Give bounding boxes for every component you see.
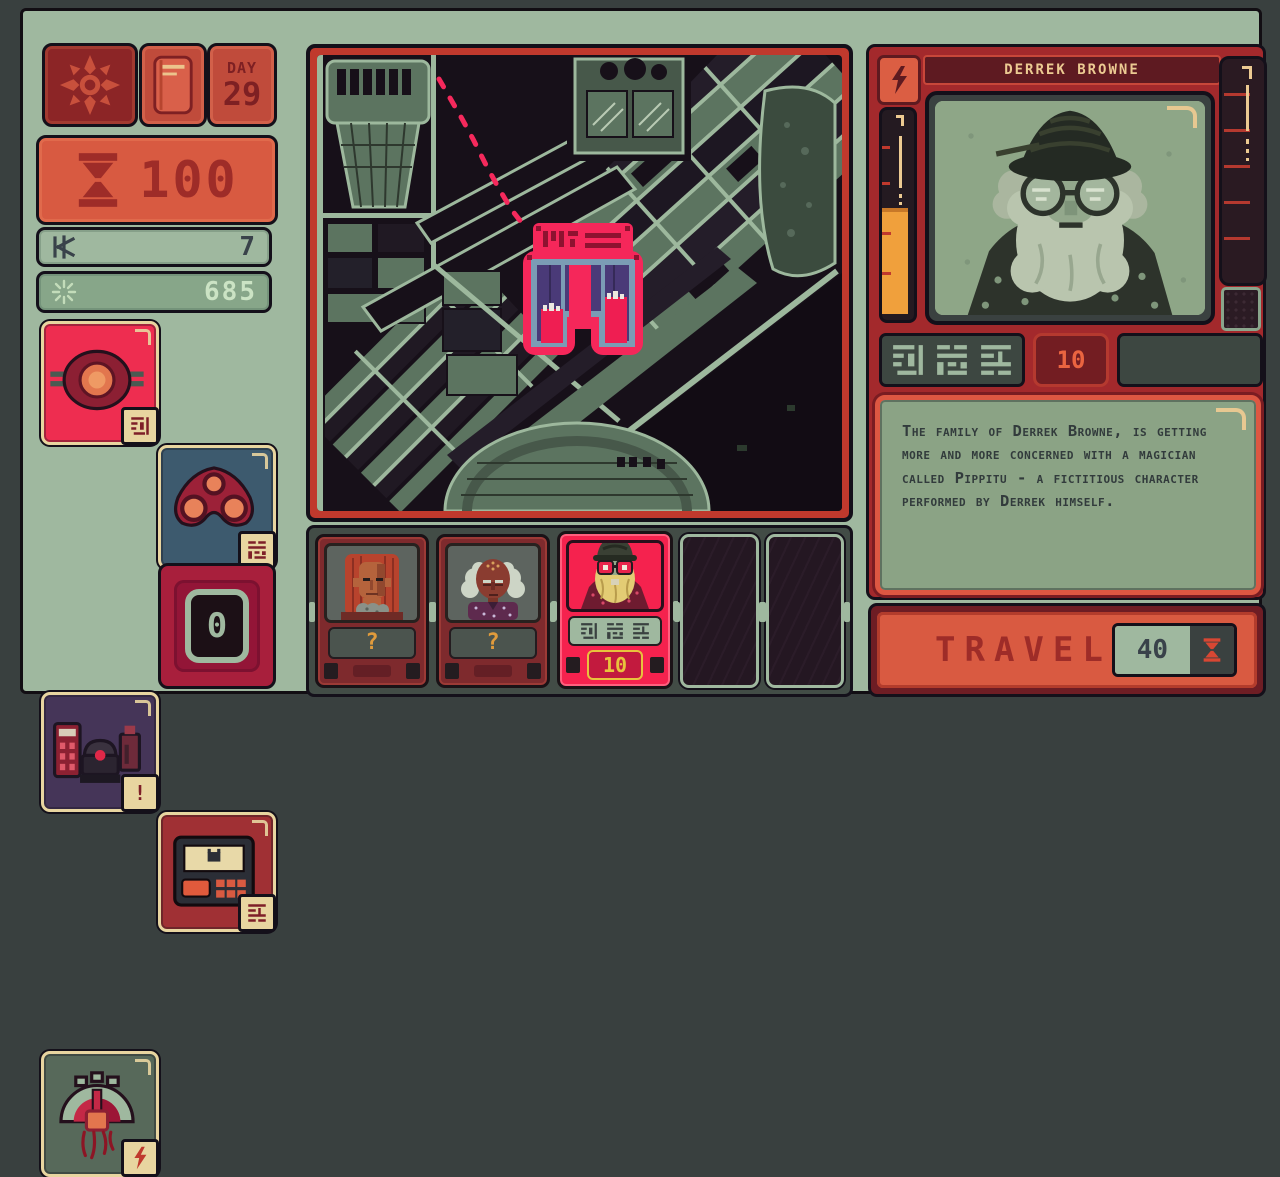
patient-name-bar: DERREK BROWNE xyxy=(923,55,1221,85)
energy-button[interactable] xyxy=(877,55,921,105)
credits-meter: 7 xyxy=(36,227,272,267)
spark-icon xyxy=(51,279,77,305)
hourglass-icon xyxy=(75,152,121,208)
item-scanner-device[interactable] xyxy=(41,321,159,445)
alert-exclamation: ! xyxy=(134,781,146,805)
map-big-building xyxy=(567,55,691,161)
hourglass-icon xyxy=(1202,637,1222,663)
compass-button[interactable] xyxy=(42,43,138,127)
patient-portrait-large xyxy=(935,101,1205,315)
counter-frame: 0 xyxy=(174,580,260,672)
map-park xyxy=(760,87,835,276)
queue-card-footer: 10 xyxy=(560,646,670,686)
bolt-plate xyxy=(566,657,580,673)
credits-value: 7 xyxy=(239,232,257,262)
patient-panel: DERREK BROWNE xyxy=(866,44,1266,600)
corner-accent xyxy=(252,820,268,836)
corner-accent xyxy=(252,453,268,469)
console-background: DAY 29 100 7 xyxy=(20,8,1262,694)
time-units-value: 100 xyxy=(139,151,238,209)
script-glyph xyxy=(934,343,970,377)
queue-card-footer xyxy=(318,659,426,685)
script-glyph xyxy=(978,343,1014,377)
travel-cost-value: 40 xyxy=(1115,626,1190,674)
patient-description: The family of Derrek Browne, is getting … xyxy=(902,420,1234,513)
patient-queue: ? xyxy=(306,525,853,697)
queue-card-1[interactable]: ? xyxy=(315,534,429,688)
bolt-plate xyxy=(527,663,541,679)
bolt-plate xyxy=(650,657,664,673)
patient-name: DERREK BROWNE xyxy=(1004,62,1140,78)
day-label: DAY xyxy=(227,61,257,76)
logbook-button[interactable] xyxy=(139,43,207,127)
patient-script-name xyxy=(568,616,662,646)
queue-card-5-empty[interactable] xyxy=(766,534,845,688)
patient-price: 10 xyxy=(1057,346,1086,374)
corner-accent xyxy=(135,700,151,716)
psycho-meter: 685 xyxy=(36,271,272,313)
script-badge xyxy=(238,894,276,932)
lightning-icon xyxy=(889,65,909,95)
patient-portrait-1 xyxy=(324,543,420,623)
patient-portrait-screen xyxy=(925,91,1215,325)
item-machine-device[interactable]: ! xyxy=(41,692,159,812)
queue-card-4-empty[interactable] xyxy=(680,534,759,688)
credits-icon xyxy=(51,234,77,260)
patient-portrait-3 xyxy=(566,540,664,612)
travel-label: TRAVEL xyxy=(935,630,1112,670)
day-value: 29 xyxy=(223,78,262,110)
foot-tab xyxy=(353,665,391,677)
queue-card-2-label: ? xyxy=(449,627,537,659)
queue-card-3-price: 10 xyxy=(587,650,643,680)
energy-badge xyxy=(121,1139,159,1177)
bolt-plate xyxy=(324,663,338,679)
screen-corner-accent xyxy=(1167,106,1197,128)
game-screen: { "left_hud": { "day_label": "DAY", "day… xyxy=(0,0,1280,720)
city-map-panel[interactable] xyxy=(306,44,853,522)
item-terminal-device[interactable] xyxy=(158,812,276,932)
empty-slot-panel xyxy=(1117,333,1263,387)
book-icon xyxy=(150,54,196,116)
queue-card-footer xyxy=(439,659,547,685)
treatment-script-panel xyxy=(879,333,1025,387)
bolt-plate xyxy=(406,663,420,679)
item-mask-device[interactable] xyxy=(158,445,276,569)
corner-accent xyxy=(135,1059,151,1075)
alert-badge: ! xyxy=(121,774,159,812)
foot-tab xyxy=(474,665,512,677)
travel-cost-icon-box xyxy=(1190,626,1234,674)
patient-price-box: 10 xyxy=(1033,333,1109,387)
item-fan-device[interactable] xyxy=(41,1051,159,1177)
day-card: DAY 29 xyxy=(207,43,277,127)
script-glyph xyxy=(890,343,926,377)
device-counter-panel: 0 xyxy=(158,563,276,689)
compass-icon xyxy=(59,54,121,116)
corner-accent xyxy=(135,329,151,345)
status-meter xyxy=(1219,56,1267,286)
travel-panel: TRAVEL 40 xyxy=(868,603,1266,697)
time-units-panel: 100 xyxy=(36,135,278,225)
queue-card-3-selected[interactable]: 10 xyxy=(557,531,673,689)
travel-button[interactable]: TRAVEL 40 xyxy=(877,612,1257,688)
script-badge xyxy=(121,407,159,445)
box-corner-accent xyxy=(1216,408,1246,430)
status-chip xyxy=(1221,287,1261,331)
lightning-icon xyxy=(131,1146,149,1170)
bolt-plate xyxy=(445,663,459,679)
queue-card-2[interactable]: ? xyxy=(436,534,550,688)
patient-description-box: The family of Derrek Browne, is getting … xyxy=(875,395,1261,595)
energy-meter xyxy=(879,107,917,323)
patient-portrait-2 xyxy=(445,543,541,623)
device-count: 0 xyxy=(185,589,249,663)
queue-card-1-label: ? xyxy=(328,627,416,659)
psycho-points-value: 685 xyxy=(204,277,257,307)
travel-cost-display: 40 xyxy=(1112,623,1237,677)
city-map[interactable] xyxy=(317,55,842,511)
